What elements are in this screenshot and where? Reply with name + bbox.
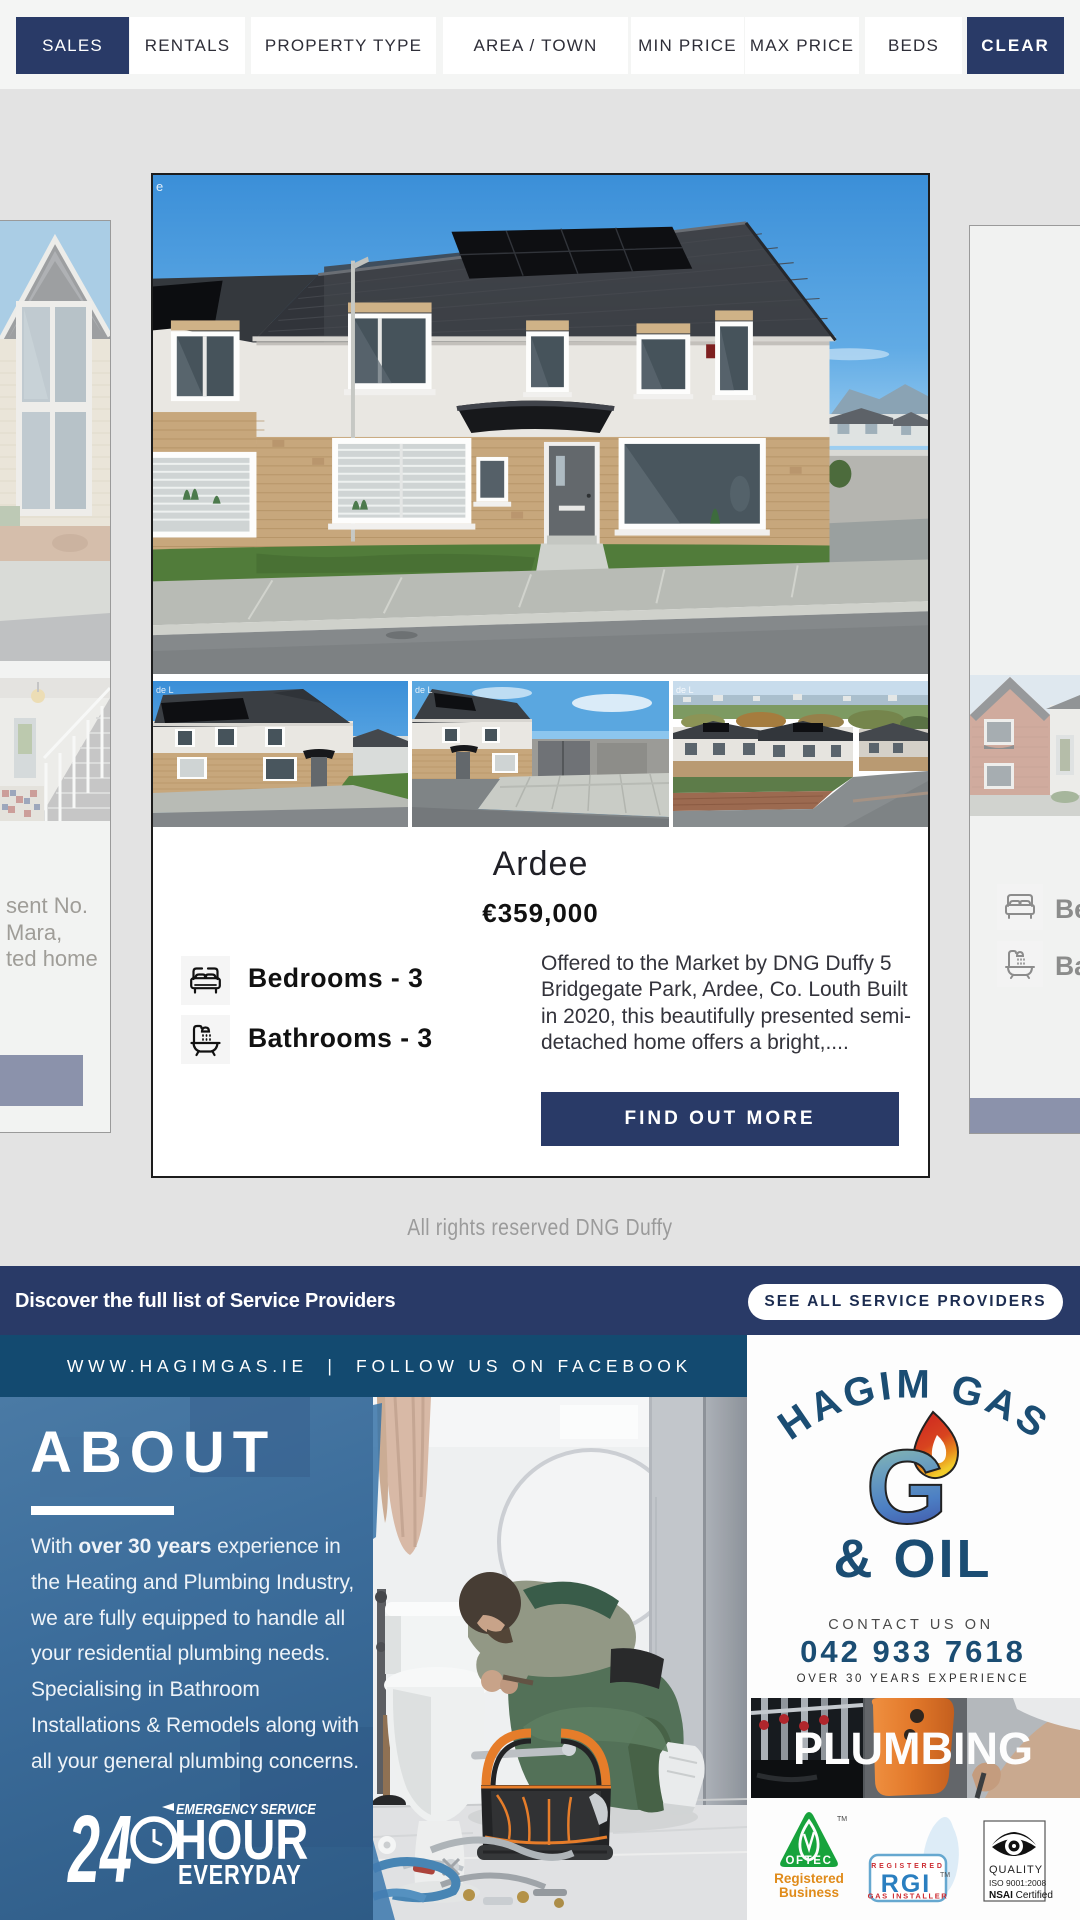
svg-text:de L: de L [156,685,174,695]
svg-text:& OIL: & OIL [834,1529,993,1589]
svg-text:QUALITY: QUALITY [989,1864,1043,1876]
svg-text:Registered: Registered [774,1871,844,1886]
svg-text:de L: de L [415,685,433,695]
svg-text:ISO 9001:2008: ISO 9001:2008 [989,1878,1046,1888]
svg-text:CONTACT US ON: CONTACT US ON [828,1617,994,1633]
svg-text:TM: TM [940,1872,950,1879]
svg-text:Business: Business [779,1885,839,1900]
svg-text:TM: TM [837,1816,847,1823]
svg-text:NSAI Certified: NSAI Certified [989,1890,1053,1901]
svg-text:REGISTERED: REGISTERED [871,1863,945,1870]
svg-text:e: e [156,179,163,194]
svg-text:OVER 30 YEARS EXPERIENCE: OVER 30 YEARS EXPERIENCE [797,1673,1030,1685]
svg-text:042 933 7618: 042 933 7618 [800,1634,1026,1669]
svg-text:24: 24 [67,1795,133,1893]
svg-text:PLUMBING: PLUMBING [793,1723,1033,1774]
svg-text:de L: de L [676,685,694,695]
svg-text:EVERYDAY: EVERYDAY [178,1859,302,1890]
svg-text:OFTEC: OFTEC [786,1855,833,1867]
svg-text:GAS INSTALLER: GAS INSTALLER [868,1892,949,1901]
